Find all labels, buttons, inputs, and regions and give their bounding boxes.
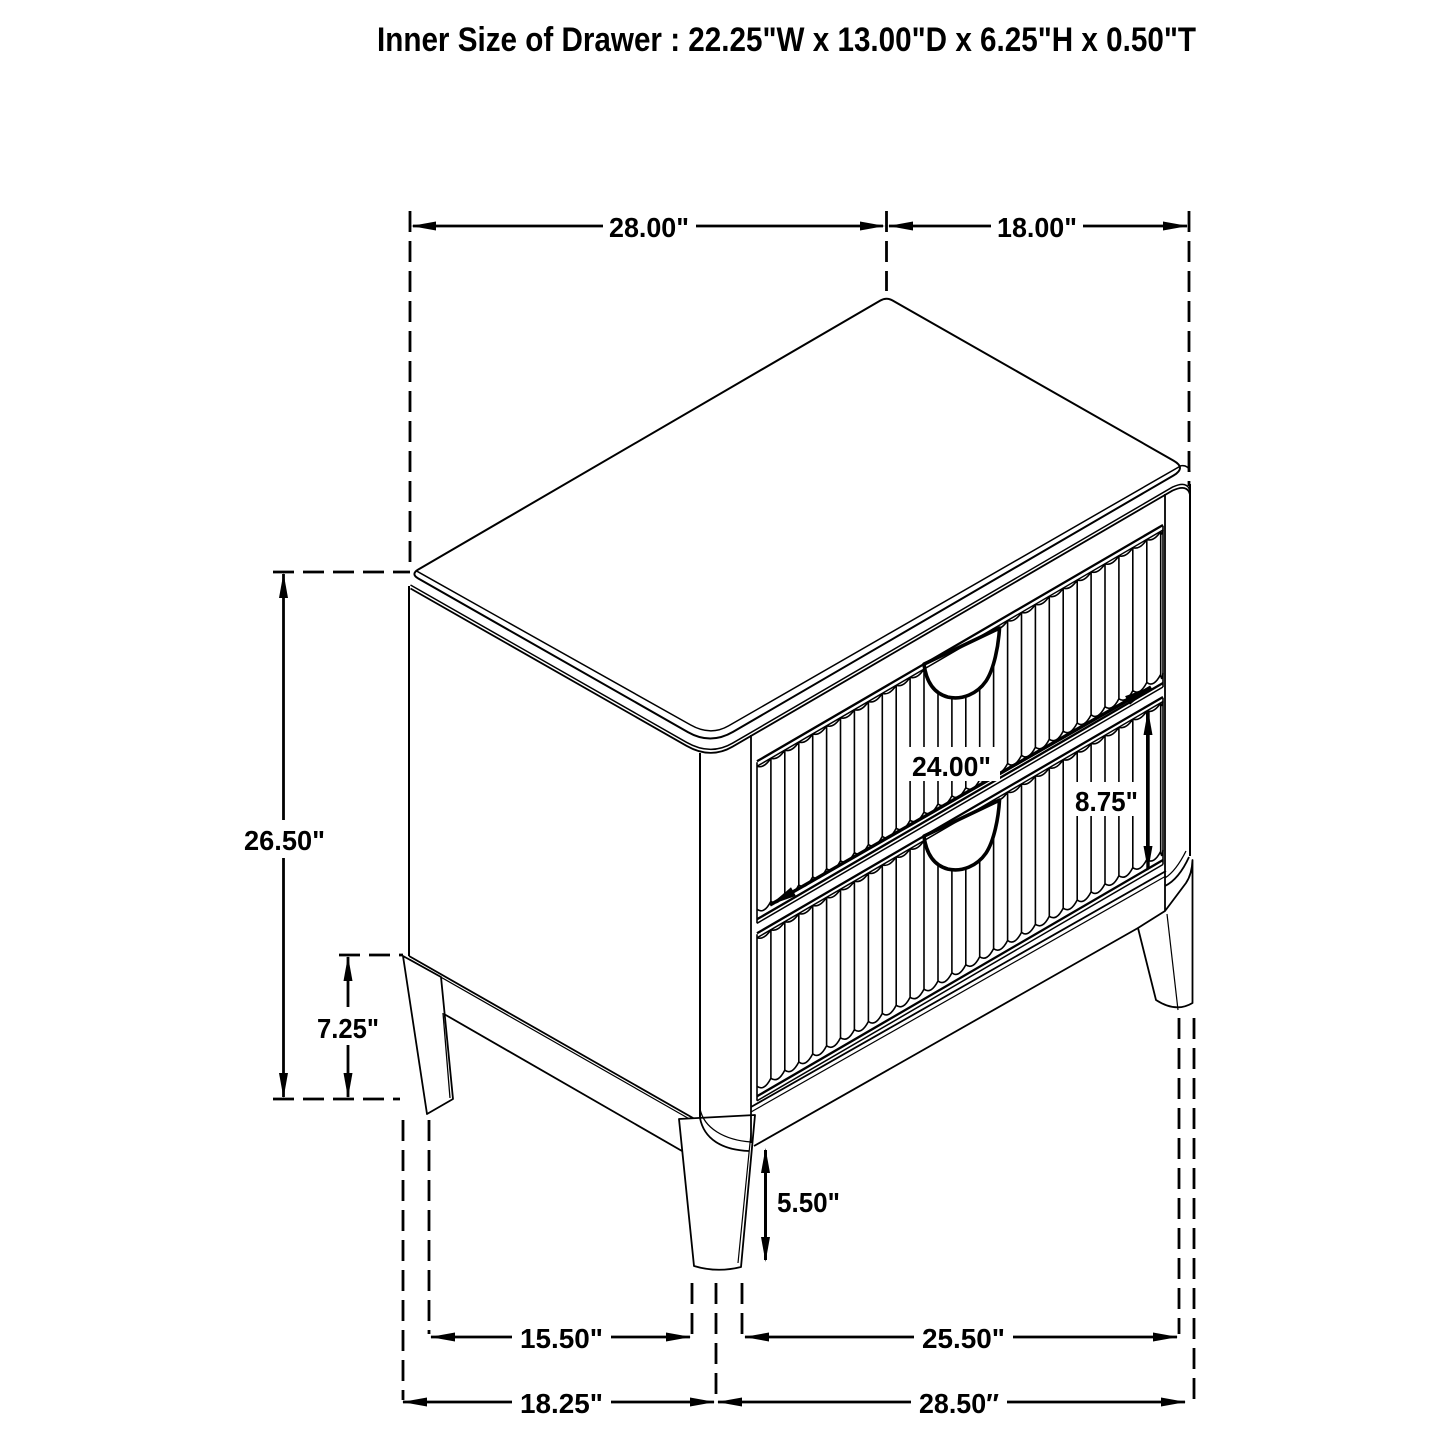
svg-text:18.00": 18.00"	[997, 212, 1077, 243]
svg-text:7.25": 7.25"	[317, 1013, 379, 1044]
svg-text:28.00": 28.00"	[609, 212, 689, 243]
svg-text:18.25": 18.25"	[520, 1388, 603, 1419]
svg-text:24.00": 24.00"	[912, 751, 991, 782]
svg-text:15.50": 15.50"	[520, 1323, 603, 1354]
svg-text:5.50": 5.50"	[777, 1187, 840, 1218]
svg-text:25.50": 25.50"	[922, 1323, 1005, 1354]
svg-text:26.50": 26.50"	[244, 825, 325, 856]
svg-text:Inner Size of Drawer : 22.25"W: Inner Size of Drawer : 22.25"W x 13.00"D…	[377, 21, 1196, 59]
svg-text:28.50″: 28.50″	[919, 1388, 999, 1419]
svg-text:8.75": 8.75"	[1075, 786, 1138, 817]
